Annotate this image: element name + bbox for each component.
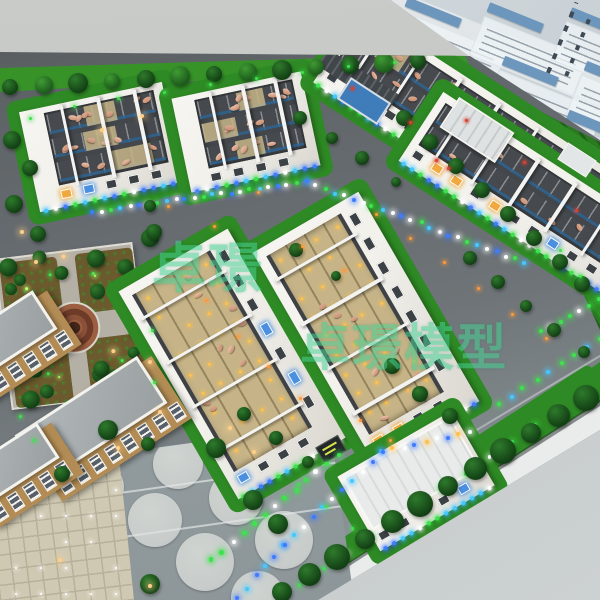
led-light [115,593,118,596]
tree [422,134,438,150]
watermark-small: 卓璟 [152,224,264,303]
led-light [568,314,572,318]
led-light [15,593,18,596]
led-light [399,214,403,218]
tree [272,582,292,600]
window [210,171,223,182]
led-light [207,362,211,366]
led-light [409,121,412,124]
window [276,448,290,461]
led-light [456,432,460,436]
led-light [58,376,61,379]
window [277,157,290,168]
led-light [116,446,120,450]
led-light [575,209,578,212]
led-light [305,179,309,183]
led-light [327,255,331,259]
led-light [201,391,205,395]
led-light [520,386,524,390]
led-light [539,329,543,333]
led-light [202,195,206,199]
tree [547,404,570,427]
tree [573,385,599,411]
tree [412,386,427,401]
led-light [247,339,251,343]
tree [293,111,307,125]
led-light [29,117,32,120]
model-pig [81,162,90,168]
tree [137,70,155,88]
window [150,169,163,180]
window-column [54,330,74,352]
led-light [447,167,450,170]
led-light [146,296,150,300]
led-light [390,446,394,450]
led-light [153,381,156,384]
led-light [375,213,378,216]
led-light [279,257,283,261]
led-light [435,159,438,162]
window [376,260,390,276]
led-light [443,261,446,264]
window [584,262,598,276]
window [296,436,310,449]
window [301,394,315,410]
tree [448,158,464,174]
led-light [342,193,346,197]
led-light [405,388,409,392]
tree [474,182,490,198]
led-light [90,593,93,596]
window-column [22,350,42,372]
window-column [103,443,123,465]
led-light [420,220,424,224]
tree [526,230,542,246]
model-pig [216,343,223,352]
led-light [560,361,564,365]
model-pig [226,344,234,354]
led-light [559,320,563,324]
tree [355,151,370,166]
led-light [171,182,175,186]
led-light [276,184,280,188]
led-light [438,230,442,234]
model-pig [228,305,237,312]
led-light [25,287,28,290]
tree [298,563,321,586]
led-light [295,488,300,493]
led-light [572,353,576,357]
window-column [151,412,171,434]
shrub [89,283,106,300]
led-light [115,489,118,492]
led-light [295,181,299,185]
led-light [290,415,294,419]
led-light [33,439,36,442]
led-light [252,450,256,454]
led-light [330,497,334,501]
led-light [40,567,43,570]
led-light [260,407,264,411]
window [449,174,463,188]
tree [438,476,458,496]
tree [547,323,561,337]
led-light [140,114,144,118]
led-light [546,370,550,374]
window [457,482,471,495]
window [257,459,271,472]
window-column [6,491,26,513]
led-light [115,567,118,570]
led-light [20,230,24,234]
tree [355,529,375,549]
led-light [577,309,581,313]
window-column [38,340,58,362]
led-light [282,496,287,501]
led-light [142,188,146,192]
led-light [235,596,239,600]
led-light [244,179,248,183]
led-light [389,439,392,442]
window [546,237,560,251]
led-light [53,206,57,210]
led-light [65,515,68,518]
led-light [73,202,77,206]
led-light [307,267,311,271]
led-light [234,181,238,185]
led-light [109,208,113,212]
led-light [350,479,354,483]
led-light [255,77,258,80]
window [128,174,141,185]
led-light [513,256,517,260]
led-light [299,397,302,400]
led-light [358,263,362,267]
led-light [559,249,562,252]
led-light [343,269,346,272]
led-light [293,168,297,172]
window [390,284,404,300]
led-light [587,304,591,308]
led-light [381,208,385,212]
led-light [301,245,304,248]
tree [206,66,222,82]
window [60,188,73,199]
tree [5,195,23,213]
led-light [351,527,354,530]
tree [54,265,70,281]
tree [268,514,288,534]
tree [381,510,404,533]
led-light [120,359,123,362]
led-light [93,198,97,202]
led-light [65,593,68,596]
led-light [40,515,43,518]
led-light [65,541,68,544]
led-light [468,430,472,434]
tree [407,491,433,517]
led-light [325,505,328,508]
tank-circle [128,493,182,547]
led-light [122,192,126,196]
shrub [4,282,17,295]
led-light [132,190,136,194]
led-light [263,175,267,179]
tree [98,420,118,440]
tree [326,132,338,144]
tree [68,73,88,93]
led-light [230,192,234,196]
led-light [303,166,307,170]
led-light [205,187,209,191]
tree [144,200,156,212]
tree [391,177,401,187]
led-light [224,183,228,187]
led-light [408,218,412,222]
model-pig [380,415,390,421]
led-light [254,177,258,181]
led-light [207,311,211,315]
tree [2,79,18,95]
led-light [148,584,152,588]
tree [578,346,591,359]
tree [302,456,314,468]
led-light [49,273,52,276]
led-light [283,170,287,174]
led-light [234,448,238,452]
led-light [58,558,62,562]
led-light [495,249,499,253]
led-light [268,378,272,382]
tree [442,408,458,424]
led-light [257,191,260,194]
led-light [44,209,48,213]
led-light [63,204,67,208]
led-light [324,462,329,467]
tree [35,76,53,94]
led-light [545,337,548,340]
led-light [403,446,407,450]
led-light [313,469,318,474]
window-column [6,361,26,383]
led-light [238,190,242,194]
tree [491,275,506,290]
led-light [129,204,133,208]
led-light [161,184,165,188]
led-light [102,196,106,200]
led-light [393,61,396,64]
model-pig [267,141,277,147]
model-pig [409,96,419,102]
led-light [351,87,354,90]
window [259,321,273,337]
window [232,166,245,177]
led-light [158,410,162,414]
tree [269,431,282,444]
led-light [112,194,116,198]
led-light [359,419,362,422]
model-pig [238,359,246,367]
led-light [579,275,582,278]
led-light [228,426,232,430]
led-light [320,505,324,509]
tree [463,251,477,265]
led-light [90,541,93,544]
led-light [523,161,526,164]
tree [500,206,516,222]
led-light [511,313,514,316]
model-photo: 卓璟 卓璟模型 [0,0,600,600]
model-pig [68,115,77,121]
window [348,212,362,228]
led-light [324,187,328,191]
led-light [19,415,22,418]
tree [552,254,568,270]
tree [272,60,292,80]
led-light [40,593,43,596]
led-light [90,515,93,518]
led-light [209,83,212,86]
led-light [46,372,49,375]
led-light [93,274,96,277]
tree [396,110,412,126]
led-light [73,105,76,108]
tree [54,466,70,482]
led-light [263,513,268,518]
led-light [347,65,350,68]
led-light [312,164,316,168]
led-light [384,400,388,404]
led-light [427,226,431,230]
led-light [409,237,412,240]
led-light [510,395,514,399]
shrub [39,384,55,400]
led-light [279,397,283,401]
tree [3,131,21,149]
led-light [255,573,259,577]
led-light [357,390,361,394]
led-light [335,225,339,229]
led-light [272,555,276,559]
model-pig [225,125,235,130]
window-column [0,501,10,523]
led-light [504,255,508,259]
watermark-large: 卓璟模型 [300,308,508,380]
tree [464,457,487,480]
led-light [497,402,501,406]
led-light [446,234,450,238]
tree [206,438,226,458]
window-column [22,481,42,503]
led-light [163,91,166,94]
led-light [475,243,479,247]
window-column [87,453,107,475]
led-light [115,515,118,518]
led-light [118,206,122,210]
led-light [465,119,468,122]
window [411,149,425,163]
led-light [83,200,87,204]
led-light [337,453,342,458]
window [83,183,96,194]
led-light [536,378,540,382]
led-light [465,240,469,244]
led-light [379,301,383,305]
led-light [100,128,104,132]
led-light [175,197,179,201]
led-light [435,436,439,440]
led-light [157,315,161,319]
model-pig [255,118,265,126]
led-light [242,531,247,536]
led-light [300,296,304,300]
led-light [267,365,270,368]
led-light [375,380,379,384]
led-light [252,521,257,526]
led-light [257,359,261,363]
led-light [219,381,223,385]
led-light [15,567,18,570]
led-light [165,199,169,203]
window [430,162,444,176]
led-light [425,440,429,444]
window-column [0,371,10,393]
window [255,162,268,173]
led-light [61,254,65,258]
led-light [273,173,277,177]
tree [22,160,38,176]
led-light [313,183,317,187]
led-light [151,186,155,190]
tree [104,73,120,89]
led-light [219,191,223,195]
tank-circle [176,533,234,591]
led-light [195,189,199,193]
tree [30,226,46,242]
model-pig [141,96,151,104]
led-light [284,183,288,187]
led-light [34,260,38,264]
led-light [214,185,218,189]
led-light [151,329,154,332]
tree [324,544,350,570]
led-light [320,284,324,288]
led-light [189,373,193,377]
led-light [266,185,270,189]
tree [490,438,516,464]
led-light [522,261,526,265]
led-light [137,203,141,207]
led-light [352,198,356,202]
tree [574,276,590,292]
led-light [485,247,489,251]
window-column [119,432,139,454]
led-light [301,71,304,74]
led-light [117,97,120,100]
led-light [65,567,68,570]
led-light [100,210,104,214]
led-light [456,235,460,239]
led-light [237,335,240,338]
tree [374,53,394,73]
led-light [333,192,337,196]
led-light [314,237,318,241]
window [105,179,118,190]
led-light [219,550,224,555]
window [362,236,376,252]
led-light [238,369,242,373]
led-light [210,192,214,196]
